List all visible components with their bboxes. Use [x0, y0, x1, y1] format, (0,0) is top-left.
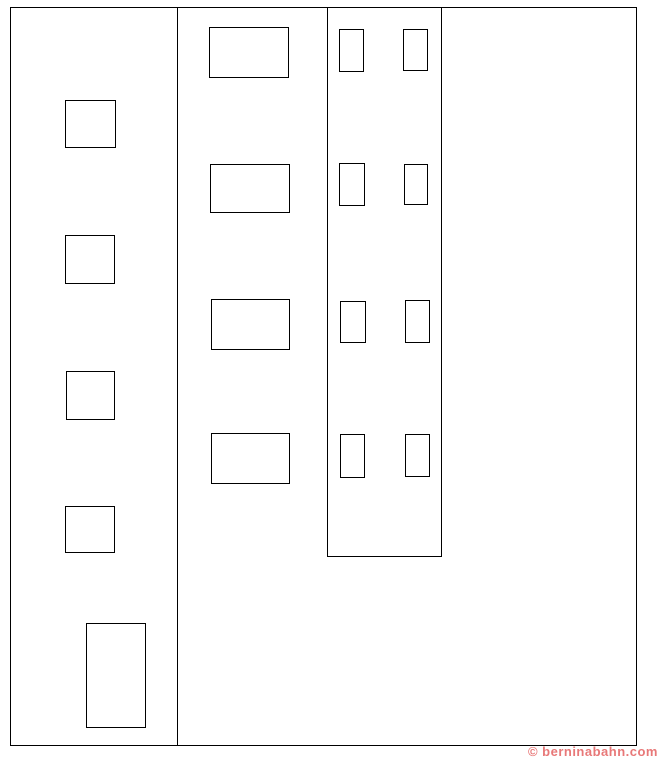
left-column-square-2: [65, 235, 115, 284]
diagram-canvas: © berninabahn.com: [0, 0, 667, 766]
inner-panel-rect-1: [339, 29, 364, 72]
inner-panel-rect-2: [403, 29, 428, 71]
inner-panel-rect-7: [340, 434, 365, 478]
middle-column-rect-1: [209, 27, 289, 78]
left-column-square-5: [86, 623, 146, 728]
inner-panel-rect-4: [404, 164, 428, 205]
inner-panel-rect-5: [340, 301, 366, 343]
left-column-square-1: [65, 100, 116, 148]
inner-panel-rect-8: [405, 434, 430, 477]
left-column-square-3: [66, 371, 115, 420]
inner-panel-rect-6: [405, 300, 430, 343]
middle-column-rect-2: [210, 164, 290, 213]
left-panel-divider: [177, 7, 178, 746]
inner-panel-rect-3: [339, 163, 365, 206]
left-column-square-4: [65, 506, 115, 553]
middle-column-rect-4: [211, 433, 290, 484]
middle-column-rect-3: [211, 299, 290, 350]
watermark-text: © berninabahn.com: [528, 744, 658, 759]
